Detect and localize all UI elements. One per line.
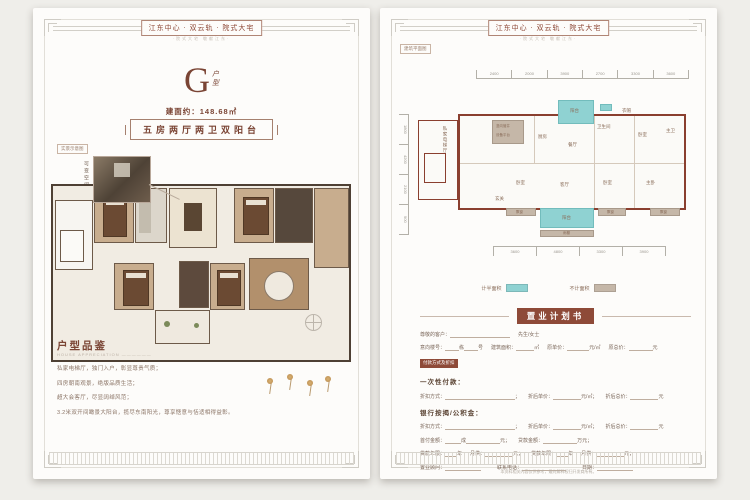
field-disc-total[interactable] [630, 393, 658, 400]
flower-icon [323, 376, 333, 392]
label-equip-2: 设备平台 [496, 133, 510, 138]
section-one-time: 一次性付款： [420, 376, 691, 386]
appreciation-subtitle: HOUSE APPRECIATION —————— [57, 352, 152, 357]
bullet-1: 私家电梯厅，独门入户，彰显尊贵气质； [57, 364, 287, 372]
bed [243, 197, 269, 235]
label-disc-price: 折后单价： [528, 423, 553, 430]
label-balcony-s: 阳台 [562, 215, 571, 221]
brochure-page-left: 江东中心 · 双云轨 · 院式大宅 ·院式大宅 敬献江东· G 户 型 建面约：… [33, 8, 370, 479]
dim-value: 900 [399, 205, 408, 235]
flower-icon [285, 374, 295, 390]
dining-table [184, 203, 202, 231]
label-bedroom-ne: 卧室 [638, 132, 647, 138]
unit-title: G 户 型 [33, 62, 370, 98]
ac-platform [600, 104, 612, 111]
label-m2: ㎡ [534, 344, 539, 351]
unit-char-2: 型 [212, 79, 219, 88]
inset-tag: 实景示意图 [57, 144, 88, 154]
label-disc-total: 折后总价： [605, 393, 630, 400]
dimension-row-bottom: 3600 4800 3300 3900 [493, 246, 666, 256]
balcony-north: 阳台 [558, 100, 594, 124]
label-bay: 飘窗 [516, 210, 523, 215]
label-equip-1: 竖向管井 [496, 124, 510, 129]
balcony-south: 阳台 [540, 208, 594, 228]
equipment-platform: 竖向管井 设备平台 [492, 120, 524, 144]
layout-desc-wrap: 五房两厅两卫双阳台 [33, 119, 370, 140]
field-discount-2[interactable] [445, 423, 515, 430]
dim-value: 4200 [399, 145, 408, 175]
flower-icon [265, 378, 275, 394]
label-semi: ； [515, 423, 520, 430]
canopy: 雨棚 [540, 230, 594, 237]
purchase-plan-form: 置业计划书 尊敬的客户： 先生/女士 意向楼号： 栋 号 建筑面积： ㎡ 原单价… [420, 308, 691, 471]
appreciation-bullets: 私家电梯厅，独门入户，彰显尊贵气质； 四房朝南观景，绝版品质生活； 超大会客厅，… [57, 364, 287, 422]
label-yuanm2s: 元/㎡； [581, 423, 597, 430]
divider [420, 316, 509, 317]
interior-photo [93, 156, 151, 203]
label-bedroom-sw: 卧室 [516, 180, 525, 186]
label-discount: 折扣方式： [420, 393, 445, 400]
dim-value: 3300 [618, 70, 653, 78]
bed [217, 270, 241, 306]
inner-wall [594, 116, 595, 208]
room-bath-ne [275, 188, 313, 243]
label-yuanm2: 元/㎡ [589, 344, 600, 351]
room-side-east [314, 188, 349, 268]
legend-label: 计半面积 [481, 285, 501, 292]
built-area: 建面约：148.68㎡ [33, 106, 370, 117]
room-bath-core [179, 261, 209, 308]
label-yuans: 元； [500, 437, 510, 444]
divider [277, 125, 278, 135]
bullet-4: 3.2米双开间瞰景大阳台，揽尽东南阳光，尊享惬意与恬适相得益彰。 [57, 408, 287, 416]
field-disc-price[interactable] [553, 393, 581, 400]
field-total[interactable] [629, 344, 653, 351]
dim-value: 2100 [399, 175, 408, 205]
bay-window: 飘窗 [506, 208, 536, 216]
flower-icon [305, 380, 315, 396]
section-mortgage: 银行按揭/公积金： [420, 407, 691, 417]
field-price[interactable] [567, 344, 589, 351]
label-yuan: 元 [658, 393, 663, 400]
dim-value: 3300 [580, 247, 623, 256]
inner-wall [634, 116, 635, 208]
inner-wall [460, 163, 684, 164]
room-bedroom-sw [114, 263, 154, 310]
plant [164, 321, 170, 327]
field-area[interactable] [516, 344, 534, 351]
area-legend: 计半面积 不计面积 [380, 284, 717, 292]
compass-icon [305, 314, 322, 331]
label-kitchen: 厨房 [538, 134, 547, 140]
label-price: 原单价： [547, 344, 567, 351]
round-tub [264, 271, 294, 301]
label-honorific: 先生/女士 [518, 331, 539, 338]
field-customer-name[interactable] [450, 331, 510, 338]
legend-swatch-tan [594, 284, 616, 292]
dim-value: 2400 [477, 70, 512, 78]
label-disc-price: 折后单价： [528, 393, 553, 400]
bullet-3: 超大会客厅，尽显阔绰风范； [57, 393, 287, 401]
pillow [220, 273, 238, 278]
elevator-shaft [60, 230, 84, 262]
label-bath: 卫生间 [597, 124, 611, 130]
legend-no-area: 不计面积 [570, 284, 616, 292]
label-hao: 号 [478, 344, 483, 351]
label-yuanm2s: 元/㎡； [581, 393, 597, 400]
label-living: 客厅 [560, 182, 569, 188]
brochure-page-right: 江东中心 · 双云轨 · 院式大宅 ·院式大宅 敬献江东· 建筑平面图 2400… [380, 8, 717, 479]
bed [123, 270, 149, 306]
unit-letter: G [184, 62, 210, 98]
disclaimer: 本资料相关内容仅供参考，最终解释权归开发商所有。 [380, 469, 717, 475]
form-title: 置业计划书 [517, 308, 595, 324]
dimension-col-left: 1800 4200 2100 900 [399, 114, 409, 235]
dim-value: 4800 [537, 247, 580, 256]
label-bay: 飘窗 [660, 210, 667, 215]
form-row-discount-2: 折扣方式： ； 折后单价： 元/㎡； 折后总价： 元 [420, 423, 691, 430]
bullet-2: 四房朝南观景，绝版品质生活； [57, 379, 287, 387]
field-down-cheng[interactable] [445, 437, 461, 444]
rendered-floorplan [51, 184, 351, 362]
divider [125, 125, 126, 135]
form-row-intent: 意向楼号： 栋 号 建筑面积： ㎡ 原单价： 元/㎡ 原总价： 元 [420, 344, 691, 351]
appreciation-title: 户型品鉴 [57, 338, 107, 353]
project-subtitle: ·院式大宅 敬献江东· [33, 36, 370, 42]
room-master-suite [249, 258, 309, 310]
field-building[interactable] [445, 344, 459, 351]
project-title: 江东中心 · 双云轨 · 院式大宅 [488, 20, 610, 36]
pillow [126, 273, 146, 278]
inner-wall [534, 116, 535, 163]
unit-char-1: 户 [212, 70, 219, 79]
bay-window: 飘窗 [598, 208, 626, 216]
legend-swatch-cyan [506, 284, 528, 292]
photo-window [114, 163, 130, 177]
dim-value: 3900 [623, 247, 666, 256]
field-loan-amount[interactable] [543, 437, 577, 444]
label-customer: 尊敬的客户： [420, 331, 450, 338]
label-disc-total: 折后总价： [605, 423, 630, 430]
bay-window: 飘窗 [650, 208, 680, 216]
field-number[interactable] [464, 344, 478, 351]
elevator-shaft [424, 153, 446, 183]
label-master-bath: 主卫 [666, 128, 675, 134]
form-row-downpay: 首付金额： 成 元； 贷款金额： 万元； [420, 437, 691, 444]
project-subtitle: ·院式大宅 敬献江东· [380, 36, 717, 42]
plan-tag: 建筑平面图 [400, 44, 431, 54]
form-row-discount-1: 折扣方式： ； 折后单价： 元/㎡； 折后总价： 元 [420, 393, 691, 400]
label-dining: 餐厅 [568, 142, 577, 148]
label-bedroom-se: 卧室 [603, 180, 612, 186]
form-row-customer: 尊敬的客户： 先生/女士 [420, 331, 691, 338]
legend-half-area: 计半面积 [481, 284, 527, 292]
project-title: 江东中心 · 双云轨 · 院式大宅 [141, 20, 263, 36]
label-balcony-n: 阳台 [570, 108, 579, 114]
label-discount: 折扣方式： [420, 423, 445, 430]
field-discount[interactable] [445, 393, 515, 400]
label-wan: 万元； [577, 437, 592, 444]
label-master-bed: 主卧 [646, 180, 655, 186]
dimension-row-top: 2400 2000 3900 2700 3300 3600 [476, 70, 689, 79]
dim-value: 1800 [399, 115, 408, 145]
field-disc-total-2[interactable] [630, 423, 658, 430]
dim-value: 2700 [583, 70, 618, 78]
plant [194, 323, 199, 328]
legend-label: 不计面积 [570, 285, 590, 292]
room-bedroom-se [210, 263, 245, 310]
layout-desc: 五房两厅两卫双阳台 [130, 119, 273, 140]
label-area: 建筑面积： [491, 344, 516, 351]
balcony-south [155, 310, 210, 344]
field-down-amount[interactable] [466, 437, 500, 444]
label-canopy: 雨棚 [563, 231, 570, 236]
payment-tag: 付款方式及折扣 [420, 359, 458, 368]
label-loan-amount: 贷款金额： [518, 437, 543, 444]
label-foyer: 玄关 [495, 196, 504, 202]
label-bay: 飘窗 [607, 210, 614, 215]
pillow [246, 200, 266, 205]
label-total: 原总价： [608, 344, 628, 351]
label-yuan: 元 [658, 423, 663, 430]
dim-value: 3600 [494, 247, 537, 256]
unit-suffix: 户 型 [212, 70, 219, 88]
dimension-floorplan: 2400 2000 3900 2700 3300 3600 1800 4200 … [398, 58, 700, 266]
divider [602, 316, 691, 317]
room-bedroom-ne [234, 188, 274, 243]
label-cloak: 衣帽 [622, 108, 631, 114]
label-yuan: 元 [653, 344, 658, 351]
label-semi: ； [515, 393, 520, 400]
dim-value: 2000 [512, 70, 547, 78]
form-title-row: 置业计划书 [420, 308, 691, 324]
label-elevator: 私家电梯厅 [442, 126, 448, 154]
fret-band [396, 452, 701, 465]
dim-value: 3600 [654, 70, 689, 78]
label-down: 首付金额： [420, 437, 445, 444]
fret-band [49, 452, 354, 465]
label-building: 意向楼号： [420, 344, 445, 351]
dim-value: 3900 [548, 70, 583, 78]
bed [103, 197, 127, 237]
field-disc-price-2[interactable] [553, 423, 581, 430]
